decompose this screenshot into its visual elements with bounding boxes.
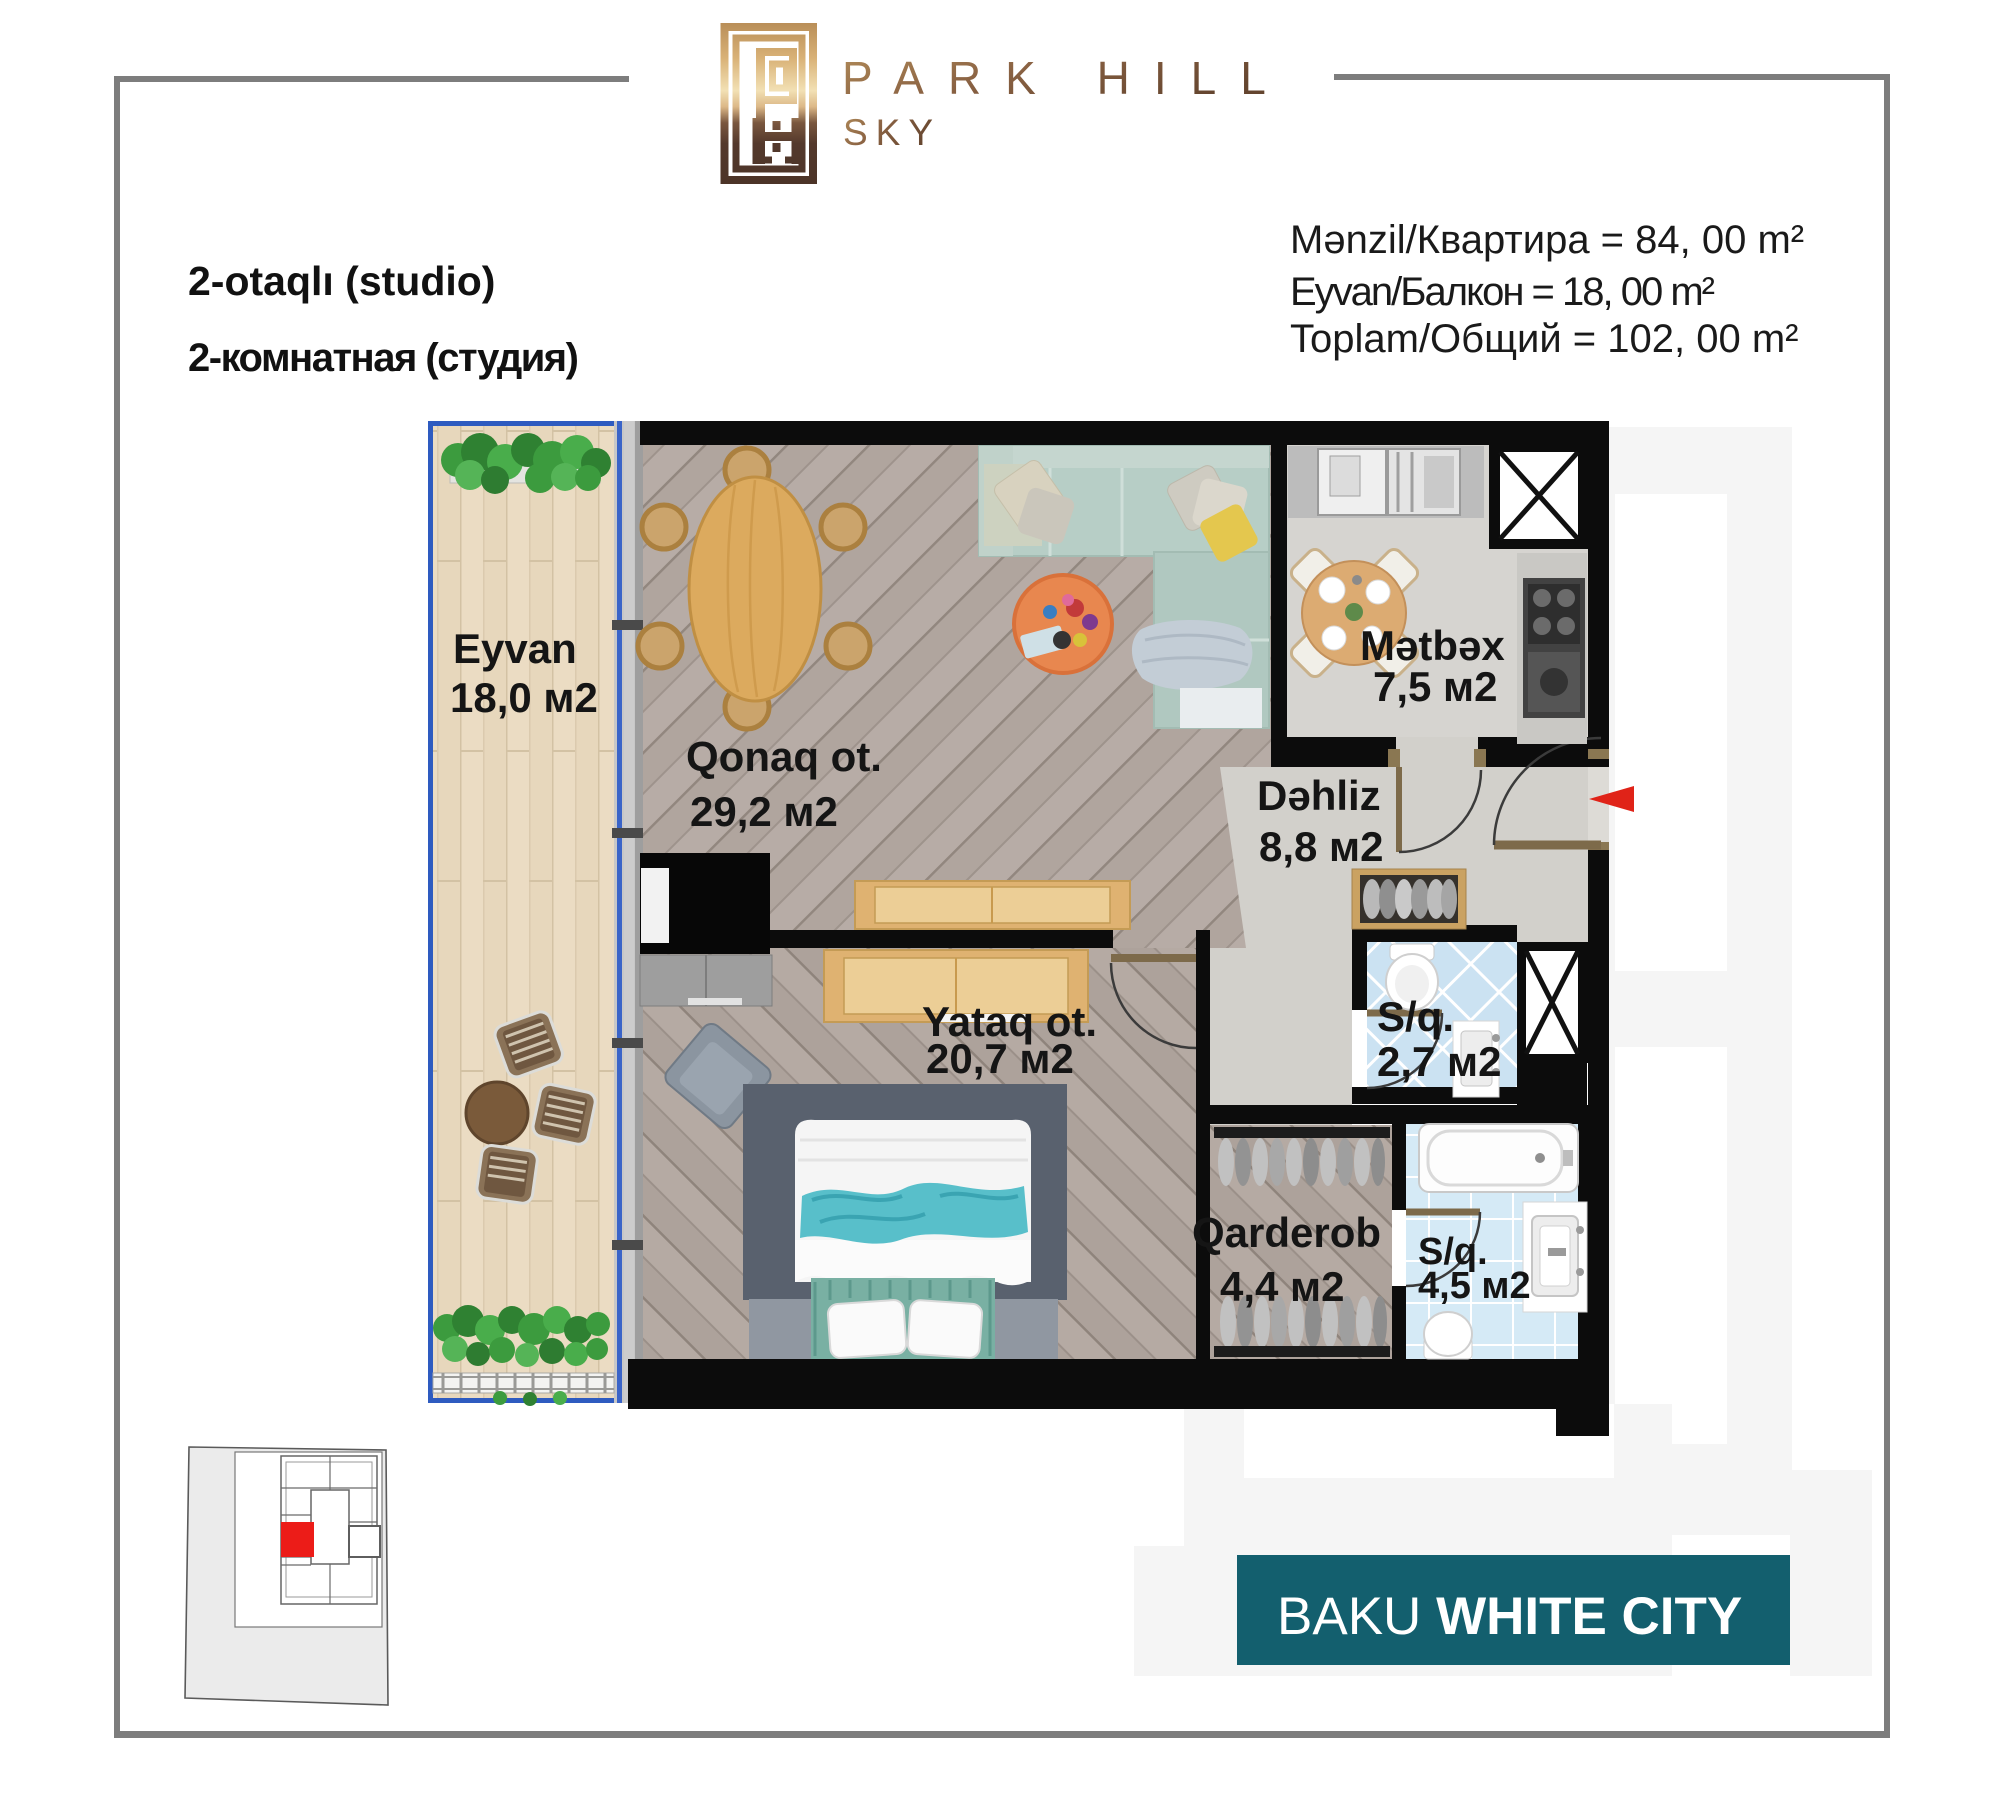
svg-text:Mənzil/Квартира = 84, 00 m²: Mənzil/Квартира = 84, 00 m²	[1290, 218, 1804, 262]
svg-text:4,5 м2: 4,5 м2	[1418, 1265, 1531, 1307]
svg-text:20,7 м2: 20,7 м2	[926, 1035, 1074, 1082]
svg-text:18,0 м2: 18,0 м2	[450, 674, 598, 721]
svg-text:Qarderob: Qarderob	[1192, 1209, 1381, 1256]
svg-text:7,5 м2: 7,5 м2	[1373, 663, 1497, 710]
svg-text:BAKU WHITE CITY: BAKU WHITE CITY	[1277, 1587, 1742, 1646]
svg-text:Dəhliz: Dəhliz	[1257, 772, 1381, 819]
svg-text:S/q.: S/q.	[1377, 993, 1454, 1040]
svg-text:29,2 м2: 29,2 м2	[690, 788, 838, 835]
svg-text:2-комнатная (студия): 2-комнатная (студия)	[188, 336, 578, 380]
svg-text:Eyvan: Eyvan	[453, 625, 577, 672]
svg-text:2,7 м2: 2,7 м2	[1377, 1038, 1501, 1085]
svg-text:Mətbəx: Mətbəx	[1360, 622, 1505, 669]
svg-text:2-otaqlı (studio): 2-otaqlı (studio)	[188, 258, 495, 304]
svg-text:Qonaq ot.: Qonaq ot.	[686, 733, 882, 780]
svg-text:Toplam/Общий = 102, 00 m²: Toplam/Общий = 102, 00 m²	[1290, 317, 1798, 361]
svg-text:SKY: SKY	[843, 112, 941, 153]
svg-text:8,8 м2: 8,8 м2	[1259, 823, 1383, 870]
svg-text:Eyvan/Балкон = 18, 00 m²: Eyvan/Балкон = 18, 00 m²	[1290, 270, 1715, 314]
svg-text:PARK HILL: PARK HILL	[842, 52, 1290, 104]
svg-text:4,4 м2: 4,4 м2	[1220, 1263, 1344, 1310]
